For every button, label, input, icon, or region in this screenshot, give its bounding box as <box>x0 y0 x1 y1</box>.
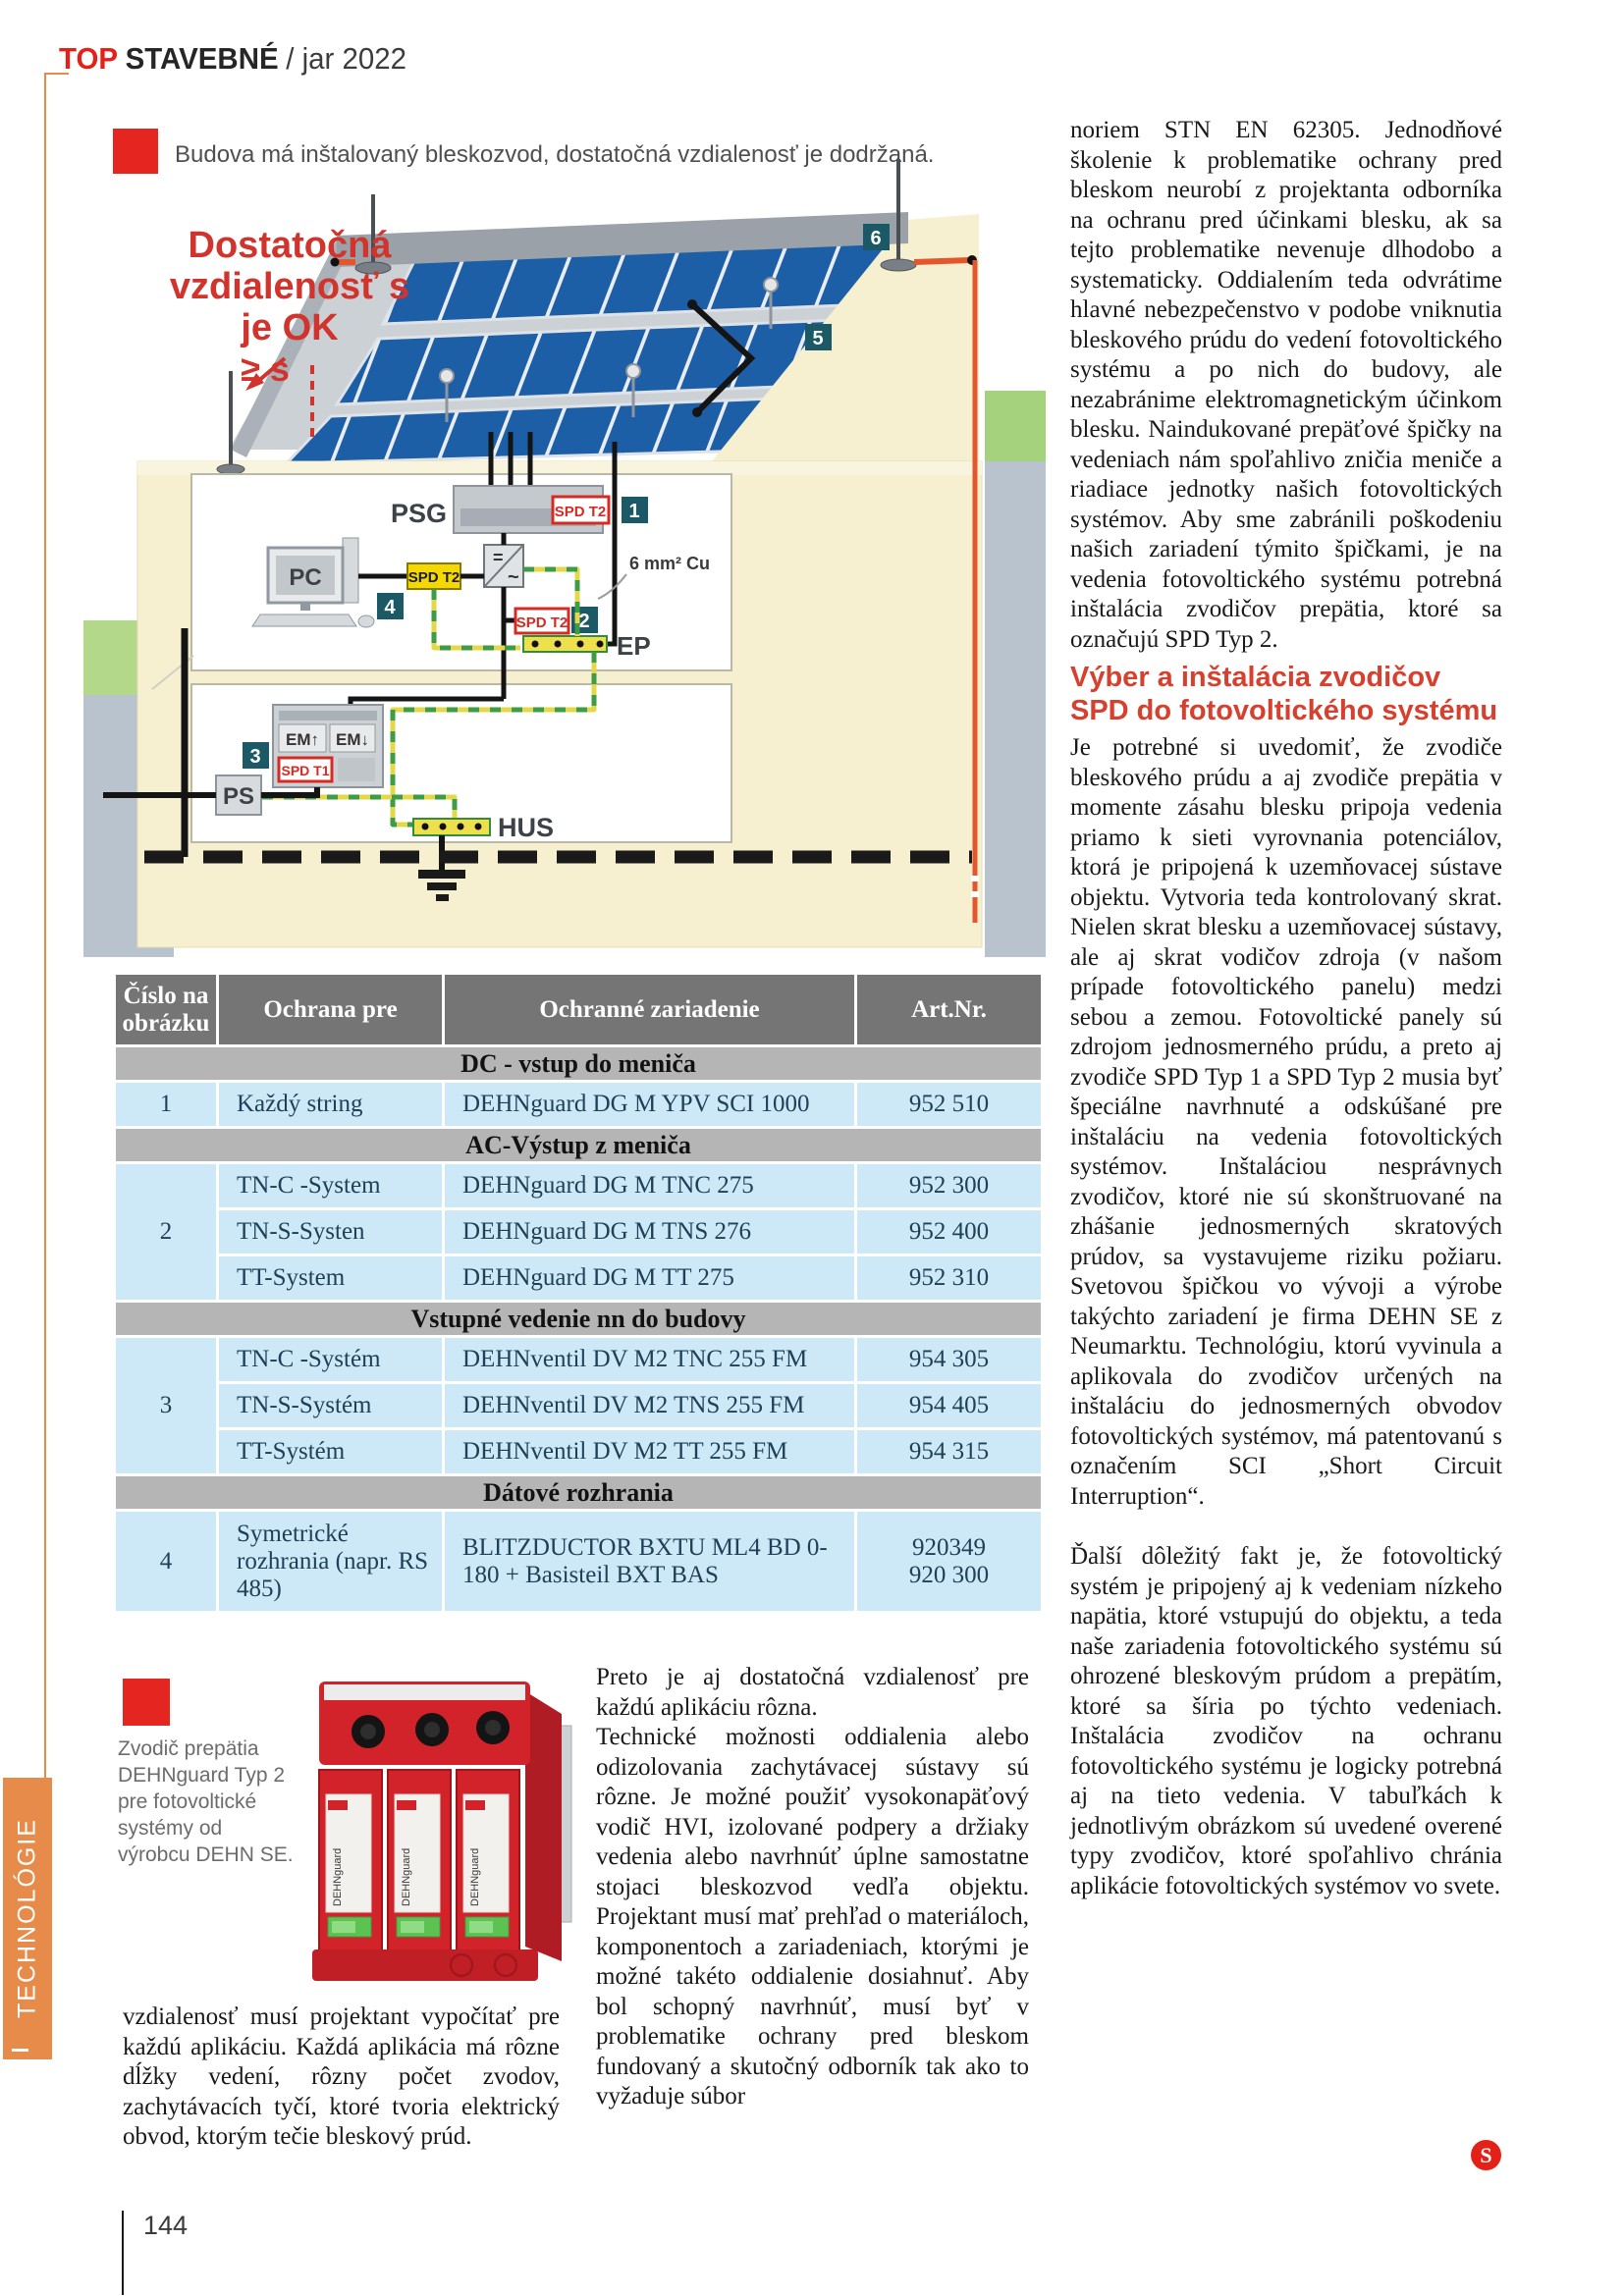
masthead-top: TOP <box>59 41 118 76</box>
device-module: DEHNguard <box>388 1770 451 1951</box>
paragraph: Ďalší dôležitý fakt je, že fotovoltický … <box>1070 1542 1502 1901</box>
terminal-dot <box>458 824 464 830</box>
ground-right <box>985 461 1046 957</box>
col-header-art: Art.Nr. <box>856 974 1043 1046</box>
sidebar-section-label: TECHNOLÓGIE <box>3 1778 52 2059</box>
terminal-dot <box>475 824 482 830</box>
conductor-gap <box>971 876 979 881</box>
caption-marker-square <box>123 1679 170 1726</box>
table-section-row: Vstupné vedenie nn do budovy <box>115 1302 1043 1337</box>
label-psg: PSG <box>391 499 447 528</box>
table-row: TN-S-Systém DEHNventil DV M2 TNS 255 FM … <box>115 1383 1043 1429</box>
section-title: Dátové rozhrania <box>115 1475 1043 1511</box>
label-em-down: EM↓ <box>336 730 369 749</box>
junction-dot <box>687 299 697 309</box>
terminal-inner <box>424 1722 440 1737</box>
note-geq-s: ≥ s <box>241 348 290 389</box>
badge-2-label: 2 <box>578 611 589 632</box>
rod-base <box>881 259 916 271</box>
pc-mouse <box>358 615 374 627</box>
sidebar-dash <box>12 2049 28 2052</box>
rod-base <box>217 464 244 474</box>
cell-art: 954 315 <box>856 1429 1043 1475</box>
cell-art: 920349 920 300 <box>856 1511 1043 1613</box>
terminal-dot <box>597 641 604 648</box>
terminal-inner <box>485 1720 501 1735</box>
section-title: DC - vstup do meniča <box>115 1046 1043 1082</box>
cell-zariadenie: DEHNguard DG M TNS 276 <box>444 1209 856 1255</box>
device-module: DEHNguard <box>457 1770 519 1951</box>
footer-rule <box>122 2211 124 2295</box>
badge-4-label: 4 <box>384 597 396 618</box>
table-row: TT-System DEHNguard DG M TT 275 952 310 <box>115 1255 1043 1302</box>
table-row: 2 TN-C -System DEHNguard DG M TNC 275 95… <box>115 1163 1043 1209</box>
cell-zariadenie: DEHNventil DV M2 TNS 255 FM <box>444 1383 856 1429</box>
masthead-issue: / jar 2022 <box>286 41 406 76</box>
cell-art: 954 405 <box>856 1383 1043 1429</box>
module-label: DEHNguard <box>401 1848 412 1906</box>
meter-cell <box>338 758 375 781</box>
text-column-middle: Preto je aj dostatočná vzdialenosť pre k… <box>596 1663 1029 2112</box>
text-column-right: noriem STN EN 62305. Jednodňové školenie… <box>1070 116 1502 1901</box>
margin-rule <box>44 73 46 1778</box>
terminal-inner <box>360 1724 376 1739</box>
section-title: Vstupné vedenie nn do budovy <box>115 1302 1043 1337</box>
paragraph: vzdialenosť musí projektant vypočítať pr… <box>123 2002 560 2153</box>
terminal-dot <box>532 641 539 648</box>
cell-num: 3 <box>115 1337 218 1475</box>
page-number: 144 <box>143 2211 188 2241</box>
badge-6-label: 6 <box>870 228 881 249</box>
cell-num: 1 <box>115 1082 218 1128</box>
table-section-row: AC-Výstup z meniča <box>115 1128 1043 1163</box>
terminal-dot <box>577 641 584 648</box>
terminal-dot <box>422 824 429 830</box>
article-subheading: Výber a inštalácia zvodičov SPD do fotov… <box>1070 661 1502 727</box>
cell-ochrana: Každý string <box>218 1082 444 1128</box>
badge-3-label: 3 <box>249 746 260 768</box>
table-row: TT-Systém DEHNventil DV M2 TT 255 FM 954… <box>115 1429 1043 1475</box>
col-header-zariadenie: Ochranné zariadenie <box>444 974 856 1046</box>
table-row: 4 Symetrické rozhrania (napr. RS 485) BL… <box>115 1511 1043 1613</box>
terminal-dot <box>555 641 562 648</box>
cell-art: 952 400 <box>856 1209 1043 1255</box>
cell-art: 952 510 <box>856 1082 1043 1128</box>
spd-t2-label: SPD T2 <box>408 569 460 586</box>
end-of-article-mark: S <box>1471 2140 1501 2170</box>
device-top-strip <box>324 1684 525 1700</box>
pc-tower <box>343 538 358 603</box>
table-section-row: DC - vstup do meniča <box>115 1046 1043 1082</box>
cell-zariadenie: BLITZDUCTOR BXTU ML4 BD 0-180 + Basistei… <box>444 1511 856 1613</box>
monitor-stand <box>300 603 310 611</box>
badge-5-label: 5 <box>812 328 823 349</box>
cell-art: 952 310 <box>856 1255 1043 1302</box>
paragraph: Technické možnosti oddialenia alebo odiz… <box>596 1723 1029 2112</box>
photo-caption: Zvodič prepätia DEHNguard Typ 2 pre foto… <box>118 1735 295 1868</box>
cell-art: 954 305 <box>856 1337 1043 1383</box>
cell-num: 4 <box>115 1511 218 1613</box>
cell-ochrana: TN-C -Systém <box>218 1337 444 1383</box>
cell-num: 2 <box>115 1163 218 1302</box>
spd-t2-label: SPD T2 <box>555 504 607 520</box>
label-em-up: EM↑ <box>286 730 319 749</box>
label-hus: HUS <box>498 813 554 842</box>
spd-t2-label: SPD T2 <box>516 614 568 631</box>
bonding-tick <box>914 260 970 262</box>
device-side <box>525 1691 562 1961</box>
paragraph: Je potrebné si uvedomiť, že zvodiče bles… <box>1070 733 1502 1512</box>
text-column-left: vzdialenosť musí projektant vypočítať pr… <box>123 2002 560 2153</box>
dehn-surge-protector-photo: DEHNguard DEHNguard DEHNguard <box>295 1667 574 1986</box>
module-label: DEHNguard <box>469 1848 481 1906</box>
cell-ochrana: TN-S-Systém <box>218 1383 444 1429</box>
cell-zariadenie: DEHNventil DV M2 TT 255 FM <box>444 1429 856 1475</box>
cell-ochrana: TN-S-Systen <box>218 1209 444 1255</box>
spd-t1-label: SPD T1 <box>281 763 329 778</box>
inverter-dc-symbol: = <box>493 548 504 567</box>
cell-ochrana: TT-Systém <box>218 1429 444 1475</box>
magazine-page: { "theme": { "accent_red": "#e32119", "h… <box>0 0 1624 2296</box>
junction-dot <box>692 407 702 417</box>
cell-zariadenie: DEHNguard DG M TT 275 <box>444 1255 856 1302</box>
col-header-ochrana: Ochrana pre <box>218 974 444 1046</box>
note-line2: vzdialenosť s <box>170 266 409 307</box>
eave-band <box>137 461 982 475</box>
label-ep: EP <box>617 631 651 661</box>
spd-selection-table: Číslo na obrázku Ochrana pre Ochranné za… <box>113 972 1044 1614</box>
cell-zariadenie: DEHNventil DV M2 TNC 255 FM <box>444 1337 856 1383</box>
badge-1-label: 1 <box>628 501 639 522</box>
cell-ochrana: TT-System <box>218 1255 444 1302</box>
paragraph: Preto je aj dostatočná vzdialenosť pre k… <box>596 1663 1029 1723</box>
inverter-ac-symbol: ~ <box>508 566 519 588</box>
cell-ochrana: TN-C -System <box>218 1163 444 1209</box>
pv-lightning-protection-diagram: 5 6 Dostatočná vzdialenosť s je OK ≥ s P… <box>83 137 1046 957</box>
table-row: 3 TN-C -Systém DEHNventil DV M2 TNC 255 … <box>115 1337 1043 1383</box>
col-header-cislo: Číslo na obrázku <box>115 974 218 1046</box>
label-pc: PC <box>289 564 321 591</box>
section-title: AC-Výstup z meniča <box>115 1128 1043 1163</box>
meter-top-strip <box>279 711 377 721</box>
paragraph: noriem STN EN 62305. Jednodňové školenie… <box>1070 116 1502 655</box>
label-cu: 6 mm² Cu <box>629 554 710 573</box>
magazine-masthead: TOPSTAVEBNÉ/ jar 2022 <box>59 41 406 77</box>
label-ps: PS <box>223 783 254 810</box>
table-row: TN-S-Systen DEHNguard DG M TNS 276 952 4… <box>115 1209 1043 1255</box>
cell-ochrana: Symetrické rozhrania (napr. RS 485) <box>218 1511 444 1613</box>
device-module: DEHNguard <box>319 1770 382 1951</box>
cell-zariadenie: DEHNguard DG M TNC 275 <box>444 1163 856 1209</box>
grass-right <box>985 391 1046 463</box>
table-row: 1 Každý string DEHNguard DG M YPV SCI 10… <box>115 1082 1043 1128</box>
table-header-row: Číslo na obrázku Ochrana pre Ochranné za… <box>115 974 1043 1046</box>
masthead-name: STAVEBNÉ <box>126 41 279 76</box>
pc-keyboard <box>252 614 356 626</box>
note-line3: je OK <box>240 307 339 348</box>
terminal-dot <box>440 824 447 830</box>
cell-zariadenie: DEHNguard DG M YPV SCI 1000 <box>444 1082 856 1128</box>
conductor-gap <box>971 891 979 897</box>
note-line1: Dostatočná <box>189 225 393 266</box>
table-section-row: Dátové rozhrania <box>115 1475 1043 1511</box>
sidebar-section-tab: TECHNOLÓGIE <box>3 1778 52 2059</box>
module-label: DEHNguard <box>332 1848 344 1906</box>
cell-art: 952 300 <box>856 1163 1043 1209</box>
